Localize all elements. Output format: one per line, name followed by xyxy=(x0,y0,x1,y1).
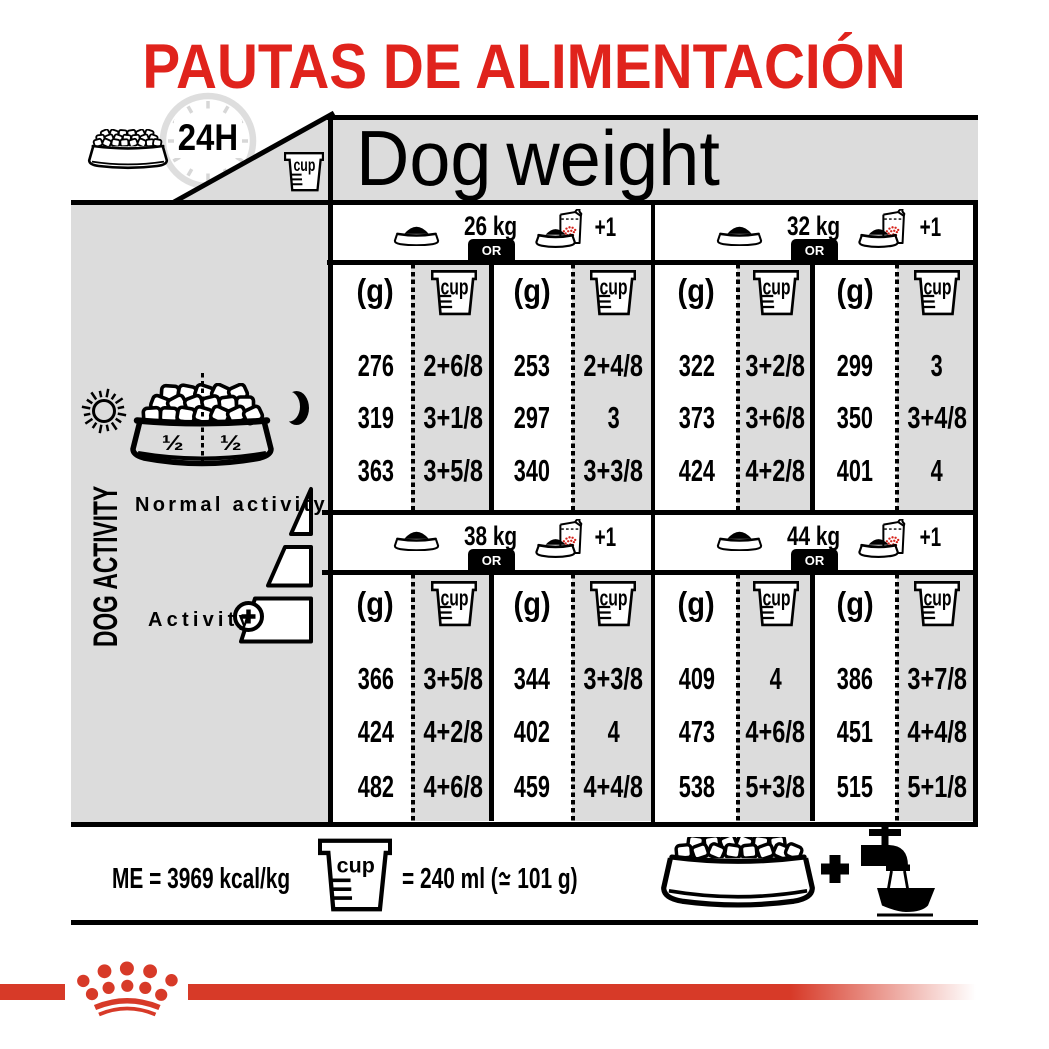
svg-text:cup: cup xyxy=(600,586,628,611)
svg-text:cup: cup xyxy=(923,586,951,611)
svg-text:cup: cup xyxy=(293,156,315,176)
svg-text:cup: cup xyxy=(440,274,468,299)
svg-text:cup: cup xyxy=(762,586,790,611)
svg-text:cup: cup xyxy=(762,274,790,299)
svg-text:cup: cup xyxy=(440,586,468,611)
svg-text:cup: cup xyxy=(923,274,951,299)
svg-text:cup: cup xyxy=(600,274,628,299)
